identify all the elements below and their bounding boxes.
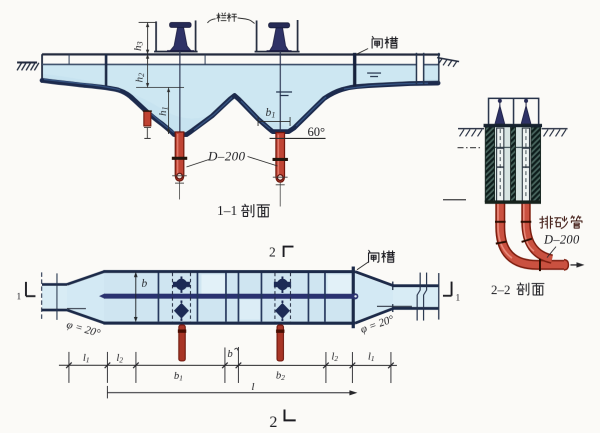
svg-text:b2: b2 <box>276 370 285 382</box>
svg-text:b1: b1 <box>174 371 183 383</box>
svg-text:l: l <box>251 381 254 393</box>
svg-text:1: 1 <box>455 294 460 304</box>
svg-text:b: b <box>141 278 147 290</box>
svg-text:D–200: D–200 <box>207 148 245 163</box>
svg-text:l2: l2 <box>331 352 338 364</box>
svg-text:1: 1 <box>16 292 21 302</box>
svg-text:b1: b1 <box>266 107 276 120</box>
svg-text:l1: l1 <box>368 352 375 364</box>
svg-text:l1: l1 <box>83 353 90 365</box>
svg-text:l2: l2 <box>116 353 123 365</box>
svg-text:2: 2 <box>269 414 277 431</box>
svg-text:1–1: 1–1 <box>217 203 237 218</box>
svg-text:2–2: 2–2 <box>491 282 511 297</box>
svg-text:60°: 60° <box>308 125 326 139</box>
svg-text:b: b <box>227 349 232 360</box>
svg-text:2: 2 <box>269 244 276 259</box>
svg-text:D–200: D–200 <box>543 233 580 247</box>
